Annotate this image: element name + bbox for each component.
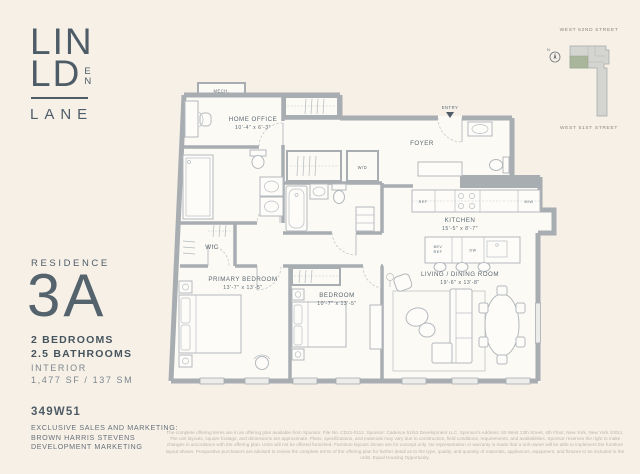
bathrooms-count: 2.5 BATHROOMS — [31, 347, 132, 361]
wd-label: W/D — [358, 165, 368, 170]
marketing-block: EXCLUSIVE SALES AND MARKETING: BROWN HAR… — [31, 423, 178, 452]
marketing-line-1: EXCLUSIVE SALES AND MARKETING: — [31, 423, 178, 433]
living-dining-dims: 19'-6" x 13'-8" — [440, 280, 479, 286]
legal-disclaimer: The complete offering terms are in an of… — [162, 430, 628, 461]
mw-label: M/W — [525, 200, 534, 204]
building-address: 349W51 — [31, 406, 81, 418]
mech-label: MECH. — [214, 89, 230, 94]
bev-ref-label: REF — [434, 250, 443, 254]
marketing-line-3: DEVELOPMENT MARKETING — [31, 442, 178, 452]
floorplan-sheet: LIN LD E N LANE WEST 52ND STREET N WEST … — [0, 0, 640, 474]
living-dining-name: LIVING / DINING ROOM — [421, 271, 499, 278]
logo-line-ld: LD — [30, 58, 81, 90]
linden-lane-logo: LIN LD E N LANE — [30, 26, 94, 123]
wic-label: WIC — [205, 244, 219, 251]
interior-value: 1,477 SF / 137 SM — [31, 374, 133, 386]
street-label-top: WEST 52ND STREET — [543, 28, 635, 33]
residence-unit: 3A — [27, 266, 106, 326]
interior-label: INTERIOR — [31, 362, 133, 374]
bev-label: BEV — [434, 245, 443, 249]
bedrooms-count: 2 BEDROOMS — [31, 333, 132, 347]
foyer-bench — [418, 162, 462, 176]
bedroom-bath-count: 2 BEDROOMS 2.5 BATHROOMS — [31, 333, 132, 361]
kitchen-name: KITCHEN — [445, 217, 476, 224]
primary-bedroom-dims: 13'-7" x 13'-5" — [223, 285, 262, 291]
compass-n-label: N — [547, 47, 550, 52]
primary-bedroom-name: PRIMARY BEDROOM — [208, 276, 277, 283]
bedroom-dims: 10'-7" x 13'-5" — [317, 301, 356, 307]
logo-divider — [31, 97, 88, 99]
logo-line-lane: LANE — [30, 106, 94, 123]
entry-label: ENTRY — [442, 105, 459, 110]
home-office-dims: 10'-4" x 6'-3" — [235, 125, 271, 131]
kitchen-dims: 15'-5" x 8'-7" — [442, 226, 478, 232]
floor-plan: MECH. HOME OFFICE 10'-4" x 6'-3" ENTRY F… — [150, 55, 570, 400]
logo-en-stack: E N — [84, 67, 91, 90]
interior-area: INTERIOR 1,477 SF / 137 SM — [31, 362, 133, 386]
logo-letter-n: N — [84, 77, 91, 87]
dw-label: DW — [470, 249, 477, 253]
kitchen-counter — [412, 190, 540, 212]
unit-highlight — [570, 56, 588, 68]
bedroom-name: BEDROOM — [319, 292, 354, 299]
home-office-name: HOME OFFICE — [229, 116, 277, 123]
foyer-label: FOYER — [410, 140, 434, 147]
ref-label: REF — [419, 200, 428, 204]
marketing-line-2: BROWN HARRIS STEVENS — [31, 433, 178, 443]
